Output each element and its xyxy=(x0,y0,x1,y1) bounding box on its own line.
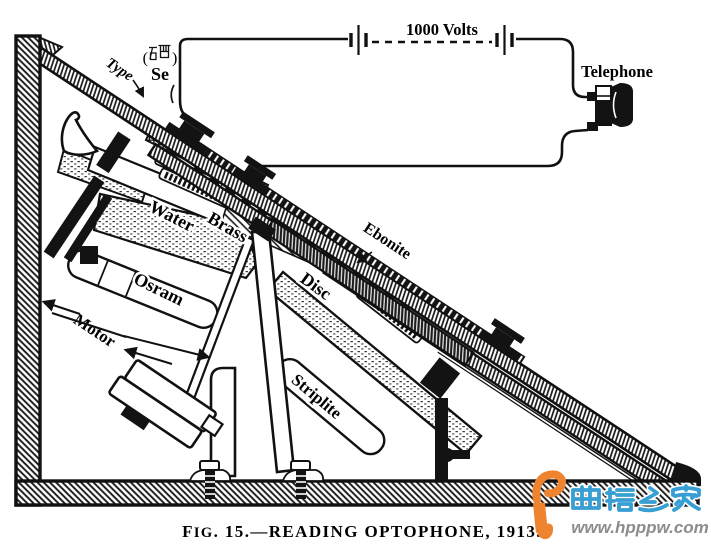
svg-text:www.hpppw.com: www.hpppw.com xyxy=(571,518,709,537)
svg-text:(: ( xyxy=(143,50,148,67)
svg-text:Se: Se xyxy=(151,64,169,84)
svg-text:Telephone: Telephone xyxy=(581,62,653,81)
svg-text:FIG. 15.—READING OPTOPHONE, 19: FIG. 15.—READING OPTOPHONE, 1913. xyxy=(182,522,542,541)
svg-text:1000 Volts: 1000 Volts xyxy=(406,20,479,39)
svg-text:): ) xyxy=(172,50,177,67)
